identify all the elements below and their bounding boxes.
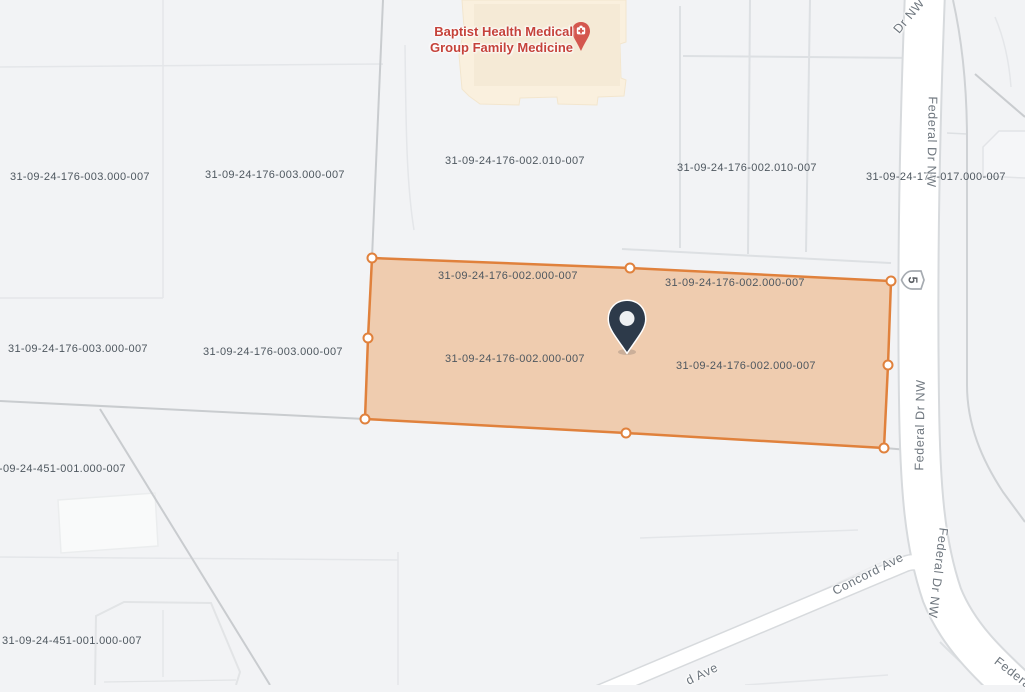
parcel-boundary-line (0, 64, 383, 67)
shield-route-number: 5 (906, 277, 920, 284)
parcel-id-label: 31-09-24-176-003.000-007 (8, 343, 148, 355)
map-geometry-layer (0, 0, 1025, 685)
parcel-vertex-handle[interactable] (622, 429, 631, 438)
selected-location-pin[interactable] (605, 297, 649, 355)
parcel-vertex-handle[interactable] (361, 415, 370, 424)
boundary-line-roadside (953, 0, 1025, 522)
parcel-id-label: 31-09-24-451-001.000-007 (0, 463, 126, 475)
parcel-vertex-handle[interactable] (368, 254, 377, 263)
parcel-boundary-line (622, 249, 891, 263)
parcel-vertex-handle[interactable] (364, 334, 373, 343)
parcel-id-label: 31-09-24-176-002.000-007 (438, 270, 578, 282)
route-5-shield-icon: 5 (898, 265, 928, 295)
road-label-federal-dr-1: Federal Dr NW (924, 96, 940, 187)
parcel-id-label: 31-09-24-176-003.000-007 (205, 169, 345, 181)
parcel-vertex-handle[interactable] (884, 361, 893, 370)
building-footprint (58, 493, 158, 553)
boundary-line-horizontal (0, 401, 365, 419)
parcel-boundary-line (745, 675, 888, 685)
parcel-boundary-line (995, 17, 1011, 87)
poi-label-line2: Group Family Medicine (430, 40, 573, 56)
parcel-boundary-line (640, 530, 858, 538)
poi-label-line1: Baptist Health Medical (430, 24, 573, 40)
boundary-line-vertical (372, 0, 383, 258)
poi-cross-horizontal (578, 30, 584, 32)
parcel-id-label: 31-09-24-451-001.000-007 (2, 635, 142, 647)
parcel-id-label: 31-09-24-176-002.000-007 (445, 353, 585, 365)
shield-rotated-group: 5 (902, 271, 925, 289)
map-canvas[interactable]: 5 Baptist Health Medical Group Family Me… (0, 0, 1025, 685)
poi-label[interactable]: Baptist Health Medical Group Family Medi… (430, 24, 573, 56)
pin-hole (620, 311, 635, 326)
parcel-outline (104, 680, 236, 682)
road-label-federal-dr-2: Federal Dr NW (912, 379, 928, 470)
parcel-boundary-line (947, 133, 967, 134)
parcel-boundary-line (405, 45, 414, 230)
parcel-vertex-handle[interactable] (887, 277, 896, 286)
parcel-id-label: 31-09-24-176-002.000-007 (676, 360, 816, 372)
parcel-boundary-line (748, 0, 750, 254)
parcel-vertex-handle[interactable] (880, 444, 889, 453)
parcel-id-label: 31-09-24-176-003.000-007 (10, 171, 150, 183)
parcel-id-label: 31-09-24-176-003.000-007 (203, 346, 343, 358)
pin-body (609, 301, 645, 352)
parcel-boundary-line (806, 0, 810, 252)
parcel-id-label: 31-09-24-176-002.010-007 (445, 155, 585, 167)
medical-poi-icon[interactable] (570, 21, 592, 53)
parcel-id-label: 31-09-24-176-002.000-007 (665, 277, 805, 289)
boundary-line-diagonal (975, 74, 1025, 117)
parcel-boundary-line (683, 56, 918, 58)
parcel-id-label: 31-09-24-176-002.010-007 (677, 162, 817, 174)
parcel-boundary-line (0, 557, 398, 560)
parcel-vertex-handle[interactable] (626, 264, 635, 273)
